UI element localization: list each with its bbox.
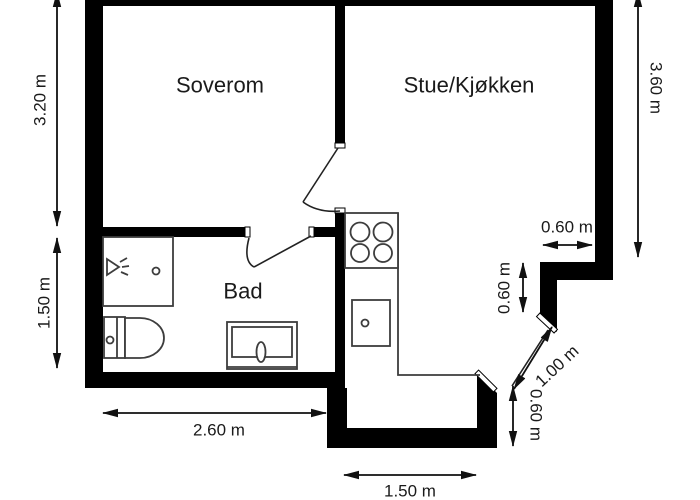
dimension-niche-depth: 0.60 m [495,262,524,314]
bedroom-door-jamb-top [335,143,345,148]
dimension-label: 1.50 m [384,482,436,500]
dimension-label: 0.60 m [527,389,546,441]
room-label-bedroom: Soverom [176,73,264,98]
dimension-niche-width: 0.60 m [541,218,593,246]
wall-bathroom-top-left [85,227,246,237]
bathroom-fixtures [103,237,297,369]
stove-burner-icon [374,244,392,262]
bathroom-door-swing-arc [247,238,254,267]
shower-drain-icon [153,268,160,275]
stove-burner-icon [374,223,393,242]
kitchen-sink-drain-icon [362,320,369,327]
dimension-label: 0.60 m [495,262,514,314]
wall-left [85,0,103,388]
dimension-label: 2.60 m [193,421,245,440]
floor-plan: Soverom Stue/Kjøkken Bad 3.20 m 1.50 m 3… [0,0,700,500]
dimension-entry-door-diagonal: 1.00 m [514,327,582,391]
dimension-living-kitchen-height: 3.60 m [638,0,666,257]
wall-top [85,0,613,6]
wall-bedroom-divider-lower [335,213,345,388]
bedroom-door-swing-arc [303,202,340,211]
wall-bedroom-divider-upper [335,0,345,143]
floor-plan-canvas: Soverom Stue/Kjøkken Bad 3.20 m 1.50 m 3… [0,0,700,500]
stove-burner-icon [351,244,369,262]
stove-burner-icon [351,223,370,242]
bathroom-sink-faucet-icon [257,342,266,362]
dimension-label: 0.60 m [541,218,593,237]
dimension-label: 1.50 m [35,277,54,329]
bathroom-door-leaf [254,236,311,267]
dimension-bedroom-height: 3.20 m [31,0,58,226]
bedroom-door-leaf [303,148,338,202]
toilet-flush-icon [107,337,114,344]
wall-bathroom-top-right [314,227,345,237]
wall-right [595,0,613,280]
shower-spray-line [122,266,129,267]
bathroom-door-jamb-right [309,227,314,237]
wall-hall-bottom [327,428,497,448]
kitchen-fixtures [345,213,480,375]
dimension-bathroom-height: 1.50 m [35,238,58,368]
dimension-label: 3.20 m [31,74,50,126]
kitchen-counter-outline [398,213,480,375]
dimension-hall-width: 1.50 m [344,475,476,500]
dimension-bathroom-width: 2.60 m [103,413,326,440]
dimension-label: 3.60 m [647,62,666,114]
room-label-living-kitchen: Stue/Kjøkken [404,73,535,98]
kitchen-sink-icon [352,300,390,346]
toilet-bowl-icon [125,318,164,358]
wall-bathroom-bottom [85,372,345,388]
dimension-hall-depth: 0.60 m [513,386,546,446]
room-label-bathroom: Bad [223,279,262,304]
bathroom-door-jamb-left [245,227,250,237]
